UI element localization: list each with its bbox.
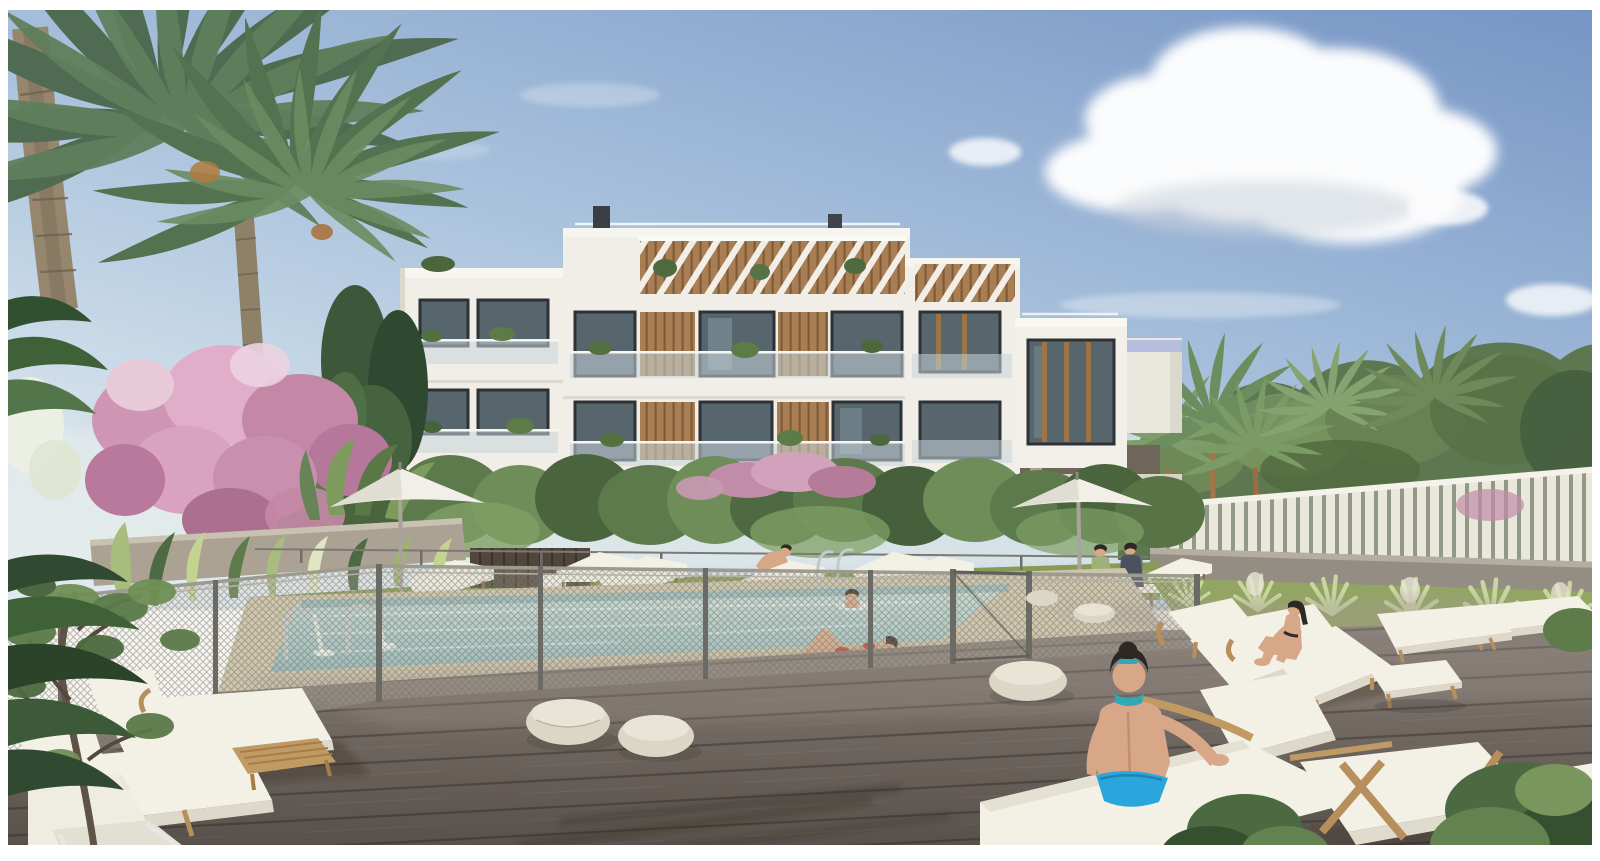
building-low-wing [1127, 338, 1182, 433]
rooftop-pergola [638, 236, 907, 294]
date-cluster [190, 161, 220, 183]
hair-bun [1119, 642, 1138, 661]
head [1113, 660, 1146, 693]
sky-reflecting-glass-rail [1127, 340, 1182, 352]
ottoman-table [1368, 660, 1466, 713]
photo-area [0, 0, 1600, 861]
building-main-mass [563, 206, 910, 480]
architectural-rendering: Sunny exterior rendering of a new white … [0, 0, 1600, 861]
date-cluster [311, 224, 333, 240]
screenshot-root: Sunny exterior rendering of a new white … [0, 0, 1600, 861]
building-right-step [905, 258, 1020, 480]
floor1-windows [570, 402, 905, 466]
floor2-windows [570, 312, 905, 378]
building-corner-box [1015, 314, 1127, 468]
teal-hair-band [1118, 659, 1138, 664]
